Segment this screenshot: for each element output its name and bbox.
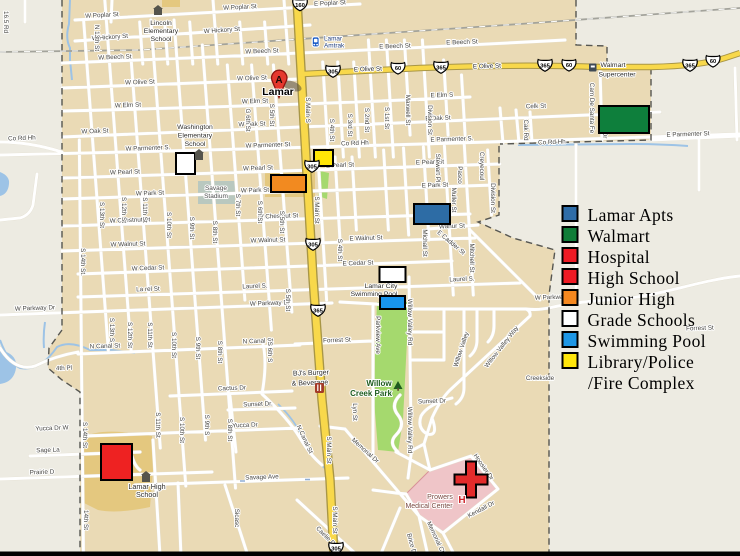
svg-text:Lamar City: Lamar City [365,283,398,290]
svg-text:S 11th St: S 11th St [141,197,148,223]
svg-text:Muller St: Muller St [450,188,457,213]
svg-text:S 11th St: S 11th St [154,412,161,438]
svg-text:60: 60 [710,59,716,65]
svg-text:Creyecoul: Creyecoul [478,152,485,180]
svg-text:Walmart: Walmart [600,62,625,69]
svg-text:Michall St: Michall St [421,229,428,257]
svg-text:Prairie D: Prairie D [30,469,55,477]
svg-text:60: 60 [395,66,401,72]
svg-text:W Cedar St: W Cedar St [132,264,165,272]
svg-text:E Olive St: E Olive St [354,66,382,74]
svg-text:Prowers: Prowers [427,494,453,501]
svg-text:S Main St: S Main St [325,436,332,464]
svg-text:60: 60 [566,63,572,69]
svg-text:La rel St: La rel St [136,286,160,294]
svg-text:S 13th S: S 13th S [108,318,115,342]
svg-text:Elementary: Elementary [178,133,213,140]
svg-text:Forrest St: Forrest St [323,337,351,345]
svg-text:Co Rd Hh: Co Rd Hh [8,135,36,143]
svg-text:Division St: Division St [489,183,496,213]
svg-text:160: 160 [295,3,306,9]
svg-text:W Parkway Dr: W Parkway Dr [15,304,55,312]
svg-text:305: 305 [331,546,342,552]
svg-text:E Olive St: E Olive St [473,63,501,71]
svg-text:Willow Valley Rd: Willow Valley Rd [406,299,413,346]
svg-text:S 10th St: S 10th St [170,332,177,358]
svg-text:Maxwell St: Maxwell St [404,95,411,126]
svg-text:/Fire Complex: /Fire Complex [588,373,695,393]
svg-text:S 9th St: S 9th St [194,337,201,360]
svg-text:305: 305 [308,242,319,248]
svg-text:4th Pl: 4th Pl [56,365,72,373]
svg-text:E Walnut St: E Walnut St [349,234,382,242]
svg-text:365: 365 [436,65,447,71]
svg-text:S Main S: S Main S [304,97,311,123]
svg-text:Parkview Ave: Parkview Ave [374,316,381,354]
svg-text:W Olive St: W Olive St [237,74,267,82]
svg-text:305: 305 [328,69,339,75]
svg-text:305: 305 [307,164,318,170]
svg-text:Savage: Savage [205,185,227,192]
svg-text:Sunset Dr: Sunset Dr [418,398,446,406]
svg-text:Willow: Willow [366,379,392,388]
svg-text:Cactus Dr: Cactus Dr [218,385,246,393]
svg-text:Walmart: Walmart [588,226,651,246]
svg-text:Library/Police: Library/Police [588,352,695,372]
svg-text:E Park St: E Park St [422,182,449,190]
svg-text:W Beech St: W Beech St [245,47,279,55]
svg-text:Savage Ave: Savage Ave [245,473,279,481]
svg-text:S 3rd St: S 3rd St [346,114,353,137]
svg-text:Supercenter: Supercenter [598,72,636,79]
svg-text:Lamar: Lamar [324,36,343,43]
svg-text:S 4th St: S 4th St [328,119,335,142]
svg-text:W Park St: W Park St [136,189,165,197]
svg-text:Creekside: Creekside [526,375,555,382]
svg-text:Elementary: Elementary [144,28,179,35]
svg-text:S Main St: S Main St [313,196,320,224]
svg-text:E Beech St: E Beech St [446,38,478,46]
svg-text:Lamar: Lamar [262,86,294,98]
svg-text:A: A [275,75,282,86]
svg-text:Yucca Dr W: Yucca Dr W [35,424,69,432]
svg-text:Washington: Washington [177,124,213,131]
svg-text:365: 365 [540,63,551,69]
svg-text:W Walnut St: W Walnut St [110,240,145,248]
svg-text:Amtrak: Amtrak [324,43,345,50]
svg-text:W Elm St: W Elm St [115,102,142,110]
svg-text:S 8th St: S 8th St [226,419,233,442]
svg-text:Hospital: Hospital [588,247,651,267]
svg-text:Division St: Division St [426,105,433,135]
svg-text:Celk St: Celk St [526,103,547,111]
svg-text:Sicasc: Sicasc [233,509,240,528]
svg-text:S 5th St: S 5th St [278,211,285,234]
svg-text:W Elm St: W Elm St [242,98,269,106]
svg-text:Stadium: Stadium [204,193,228,200]
svg-text:G 6th St: G 6th St [244,108,251,131]
svg-text:Co Rd Hh: Co Rd Hh [538,139,566,147]
svg-text:BJ's Burger: BJ's Burger [293,369,330,377]
svg-text:S 10th St: S 10th St [165,212,172,238]
svg-text:S Main St: S Main St [331,506,338,534]
svg-text:365: 365 [313,308,324,314]
svg-text:S 7th St: S 7th St [234,194,241,217]
svg-text:S 6th St: S 6th St [256,201,263,224]
svg-text:Laurel S.: Laurel S. [449,276,475,284]
svg-text:Junior High: Junior High [588,289,676,309]
svg-text:S 2nd St: S 2nd St [363,108,370,132]
svg-text:S 5th St: S 5th St [284,289,291,312]
svg-text:S 1st St: S 1st St [383,107,390,129]
svg-text:Lamar Apts: Lamar Apts [588,205,674,225]
svg-text:S 13th St: S 13th St [98,202,105,228]
svg-text:Yucca Dr: Yucca Dr [232,422,258,430]
svg-text:Mitchell St: Mitchell St [468,243,475,272]
svg-text:High School: High School [588,268,680,288]
svg-text:S 11th St: S 11th St [146,322,153,348]
svg-text:E Cedar St: E Cedar St [342,259,373,267]
svg-text:Willow Valley Rd: Willow Valley Rd [406,407,413,454]
svg-text:Swimming Pool: Swimming Pool [588,331,707,351]
svg-text:14th St: 14th St [82,510,89,530]
svg-text:School: School [185,141,206,148]
svg-text:Creek Park: Creek Park [350,389,392,398]
svg-text:Medical Center: Medical Center [405,503,453,510]
svg-text:W Pearl St: W Pearl St [243,164,274,172]
svg-text:16.5 Rd: 16.5 Rd [2,11,9,34]
svg-text:S 12th St: S 12th St [126,322,133,348]
svg-text:Stewart Pl: Stewart Pl [434,154,441,183]
svg-text:W Park St: W Park St [241,186,270,194]
svg-text:Lincoln: Lincoln [150,20,172,27]
svg-text:E Elm S: E Elm S [430,92,453,100]
svg-text:Grade Schools: Grade Schools [588,310,696,330]
svg-text:Laurel S.: Laurel S. [242,283,268,291]
svg-text:365: 365 [685,63,696,69]
svg-text:S 4th St: S 4th St [336,239,343,262]
svg-text:W Oak St: W Oak St [238,121,265,129]
svg-text:Sage La: Sage La [36,447,60,455]
svg-text:W Oak St: W Oak St [81,128,108,136]
svg-text:W Olive St: W Olive St [125,78,155,86]
svg-text:W Pearl St: W Pearl St [110,168,141,176]
svg-text:H: H [458,495,465,506]
svg-text:S 12th St: S 12th St [120,197,127,223]
svg-text:S 9th St: S 9th St [188,217,195,240]
svg-text:W Beech St: W Beech St [98,53,132,61]
svg-text:S 9th S: S 9th S [203,415,210,436]
svg-text:Cam De Santa Fe: Cam De Santa Fe [588,83,595,134]
svg-text:Pasco: Pasco [456,166,463,184]
svg-text:S 8th St: S 8th St [211,221,218,244]
svg-text:Lyn St: Lyn St [351,403,358,421]
svg-text:Sunset Dr.: Sunset Dr. [243,400,273,408]
svg-text:S 14th St: S 14th St [81,422,88,448]
svg-text:School: School [151,36,172,43]
svg-text:N Canal St: N Canal St [90,342,121,350]
svg-text:S 6th S: S 6th S [266,342,273,363]
svg-text:N 13th St: N 13th St [93,25,100,52]
svg-text:S 10th St: S 10th St [178,417,185,443]
svg-text:Co Rd Hh: Co Rd Hh [341,140,369,148]
svg-text:W Walnut St: W Walnut St [250,236,285,244]
svg-text:Cak Rd: Cak Rd [522,120,529,141]
svg-text:E Beech St: E Beech St [379,42,411,50]
svg-text:S 14th St.: S 14th St. [79,248,86,276]
svg-text:S 5th St: S 5th St [268,104,275,127]
svg-text:School: School [136,490,158,499]
svg-text:S 8th St: S 8th St [216,341,223,364]
